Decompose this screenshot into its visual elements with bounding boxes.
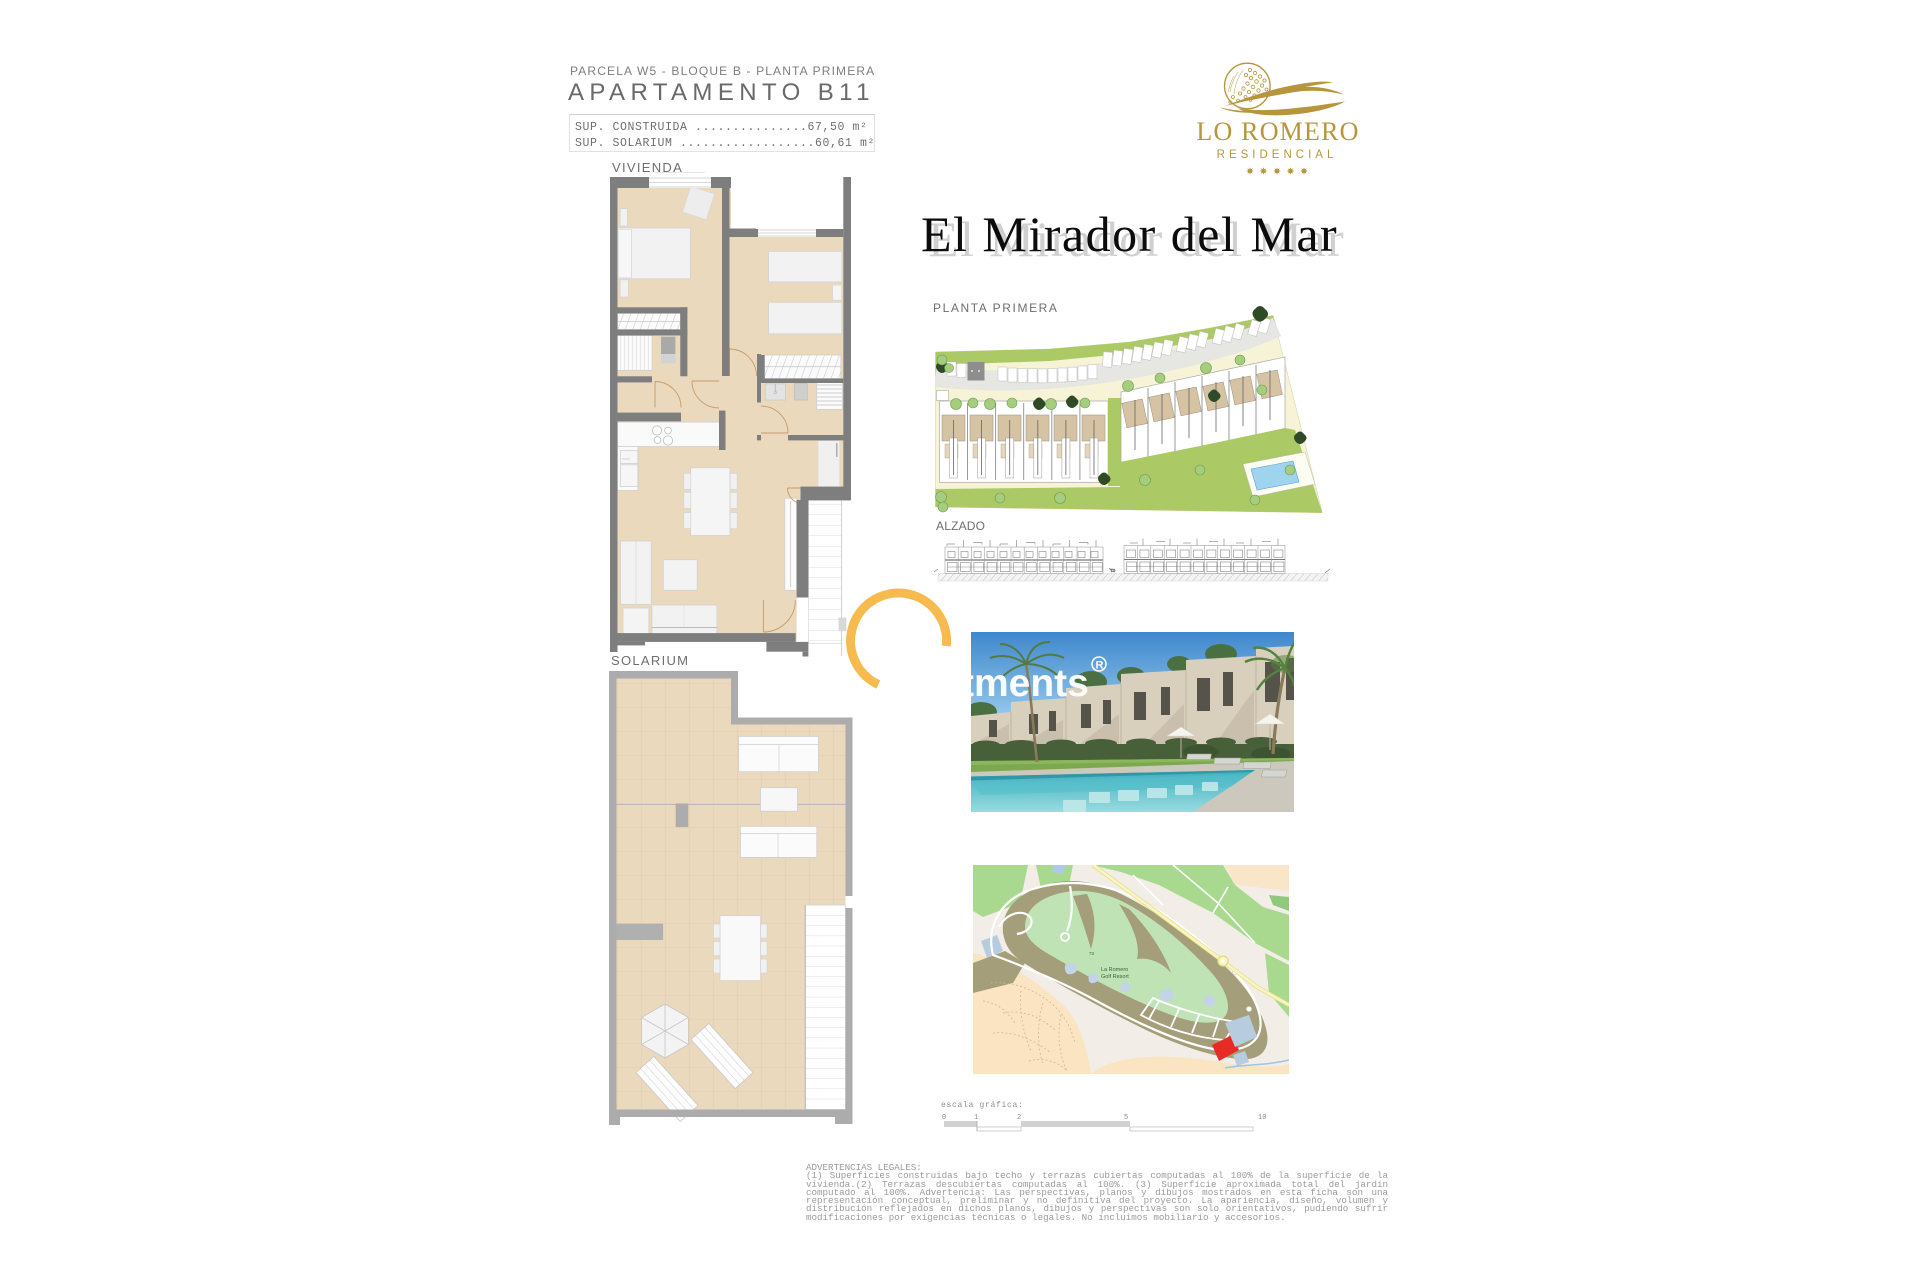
svg-text:2: 2 [1017,1114,1021,1122]
svg-text:tments: tments [971,662,1089,705]
svg-text:R: R [1096,660,1104,672]
svg-text:10: 10 [1258,1114,1266,1122]
svg-text:1: 1 [974,1114,978,1122]
svg-text:LO ROMERO: LO ROMERO [1196,117,1359,146]
svg-text:0: 0 [942,1114,946,1122]
svg-text:Golf Resort: Golf Resort [1101,974,1129,980]
svg-text:La Romero: La Romero [1101,967,1128,973]
svg-text:73: 73 [1089,951,1095,956]
svg-text:RESIDENCIAL: RESIDENCIAL [1217,149,1338,161]
svg-text:T0: T0 [1110,568,1116,573]
svg-text:5: 5 [1124,1114,1128,1122]
